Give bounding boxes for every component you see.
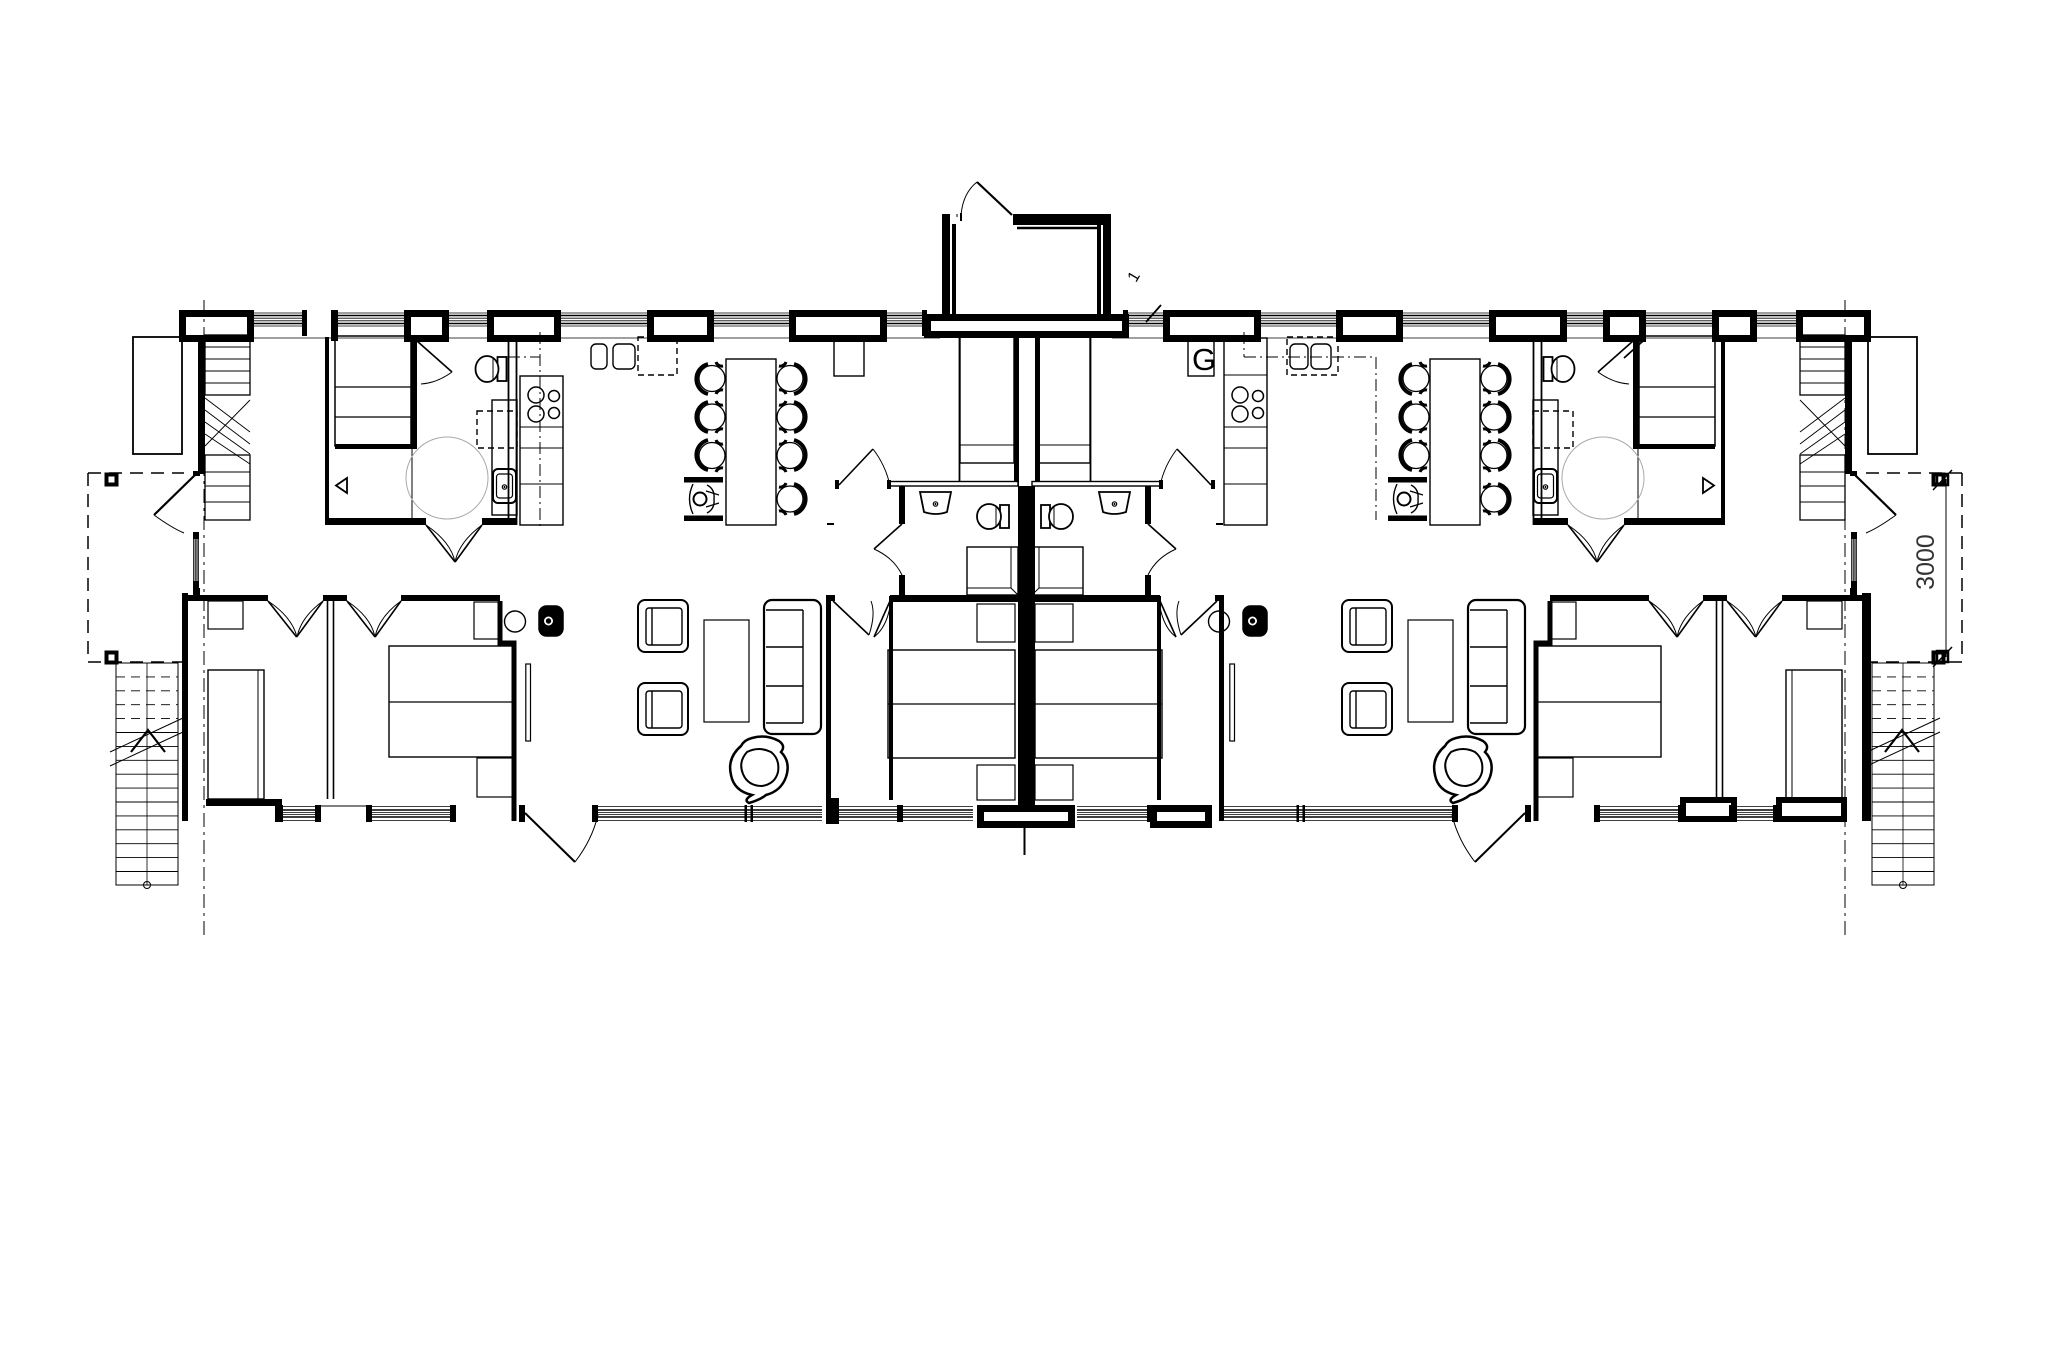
svg-text:G: G bbox=[1192, 342, 1216, 377]
svg-text:3000: 3000 bbox=[1912, 534, 1940, 590]
